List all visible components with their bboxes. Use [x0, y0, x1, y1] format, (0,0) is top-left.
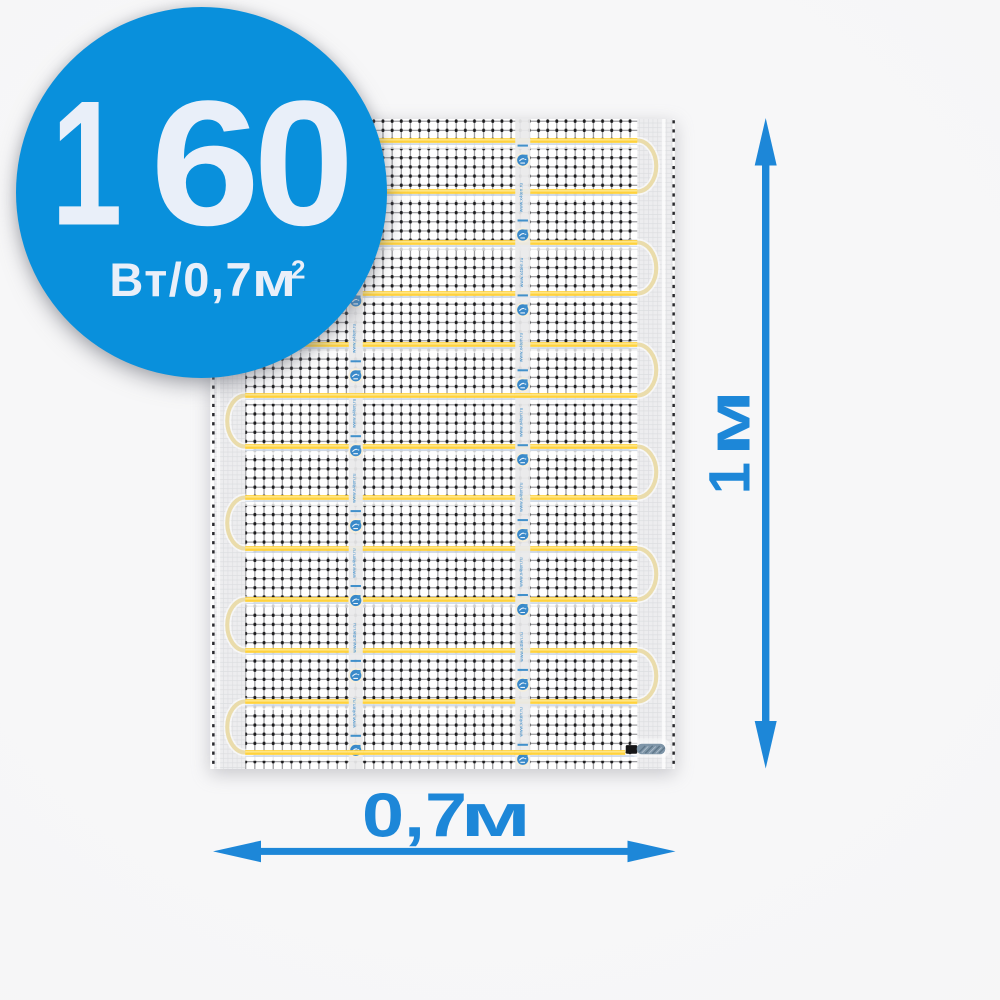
svg-text:1: 1	[51, 64, 122, 263]
svg-text:0: 0	[254, 64, 355, 263]
svg-text:м: м	[460, 782, 531, 850]
svg-text:0,7: 0,7	[362, 780, 467, 850]
svg-text:6: 6	[150, 64, 260, 262]
svg-text:Вт/0,7: Вт/0,7	[109, 253, 253, 306]
svg-text:2: 2	[291, 254, 305, 284]
svg-text:1: 1	[697, 462, 762, 494]
svg-text:м: м	[252, 254, 296, 306]
svg-text:м: м	[696, 390, 763, 457]
